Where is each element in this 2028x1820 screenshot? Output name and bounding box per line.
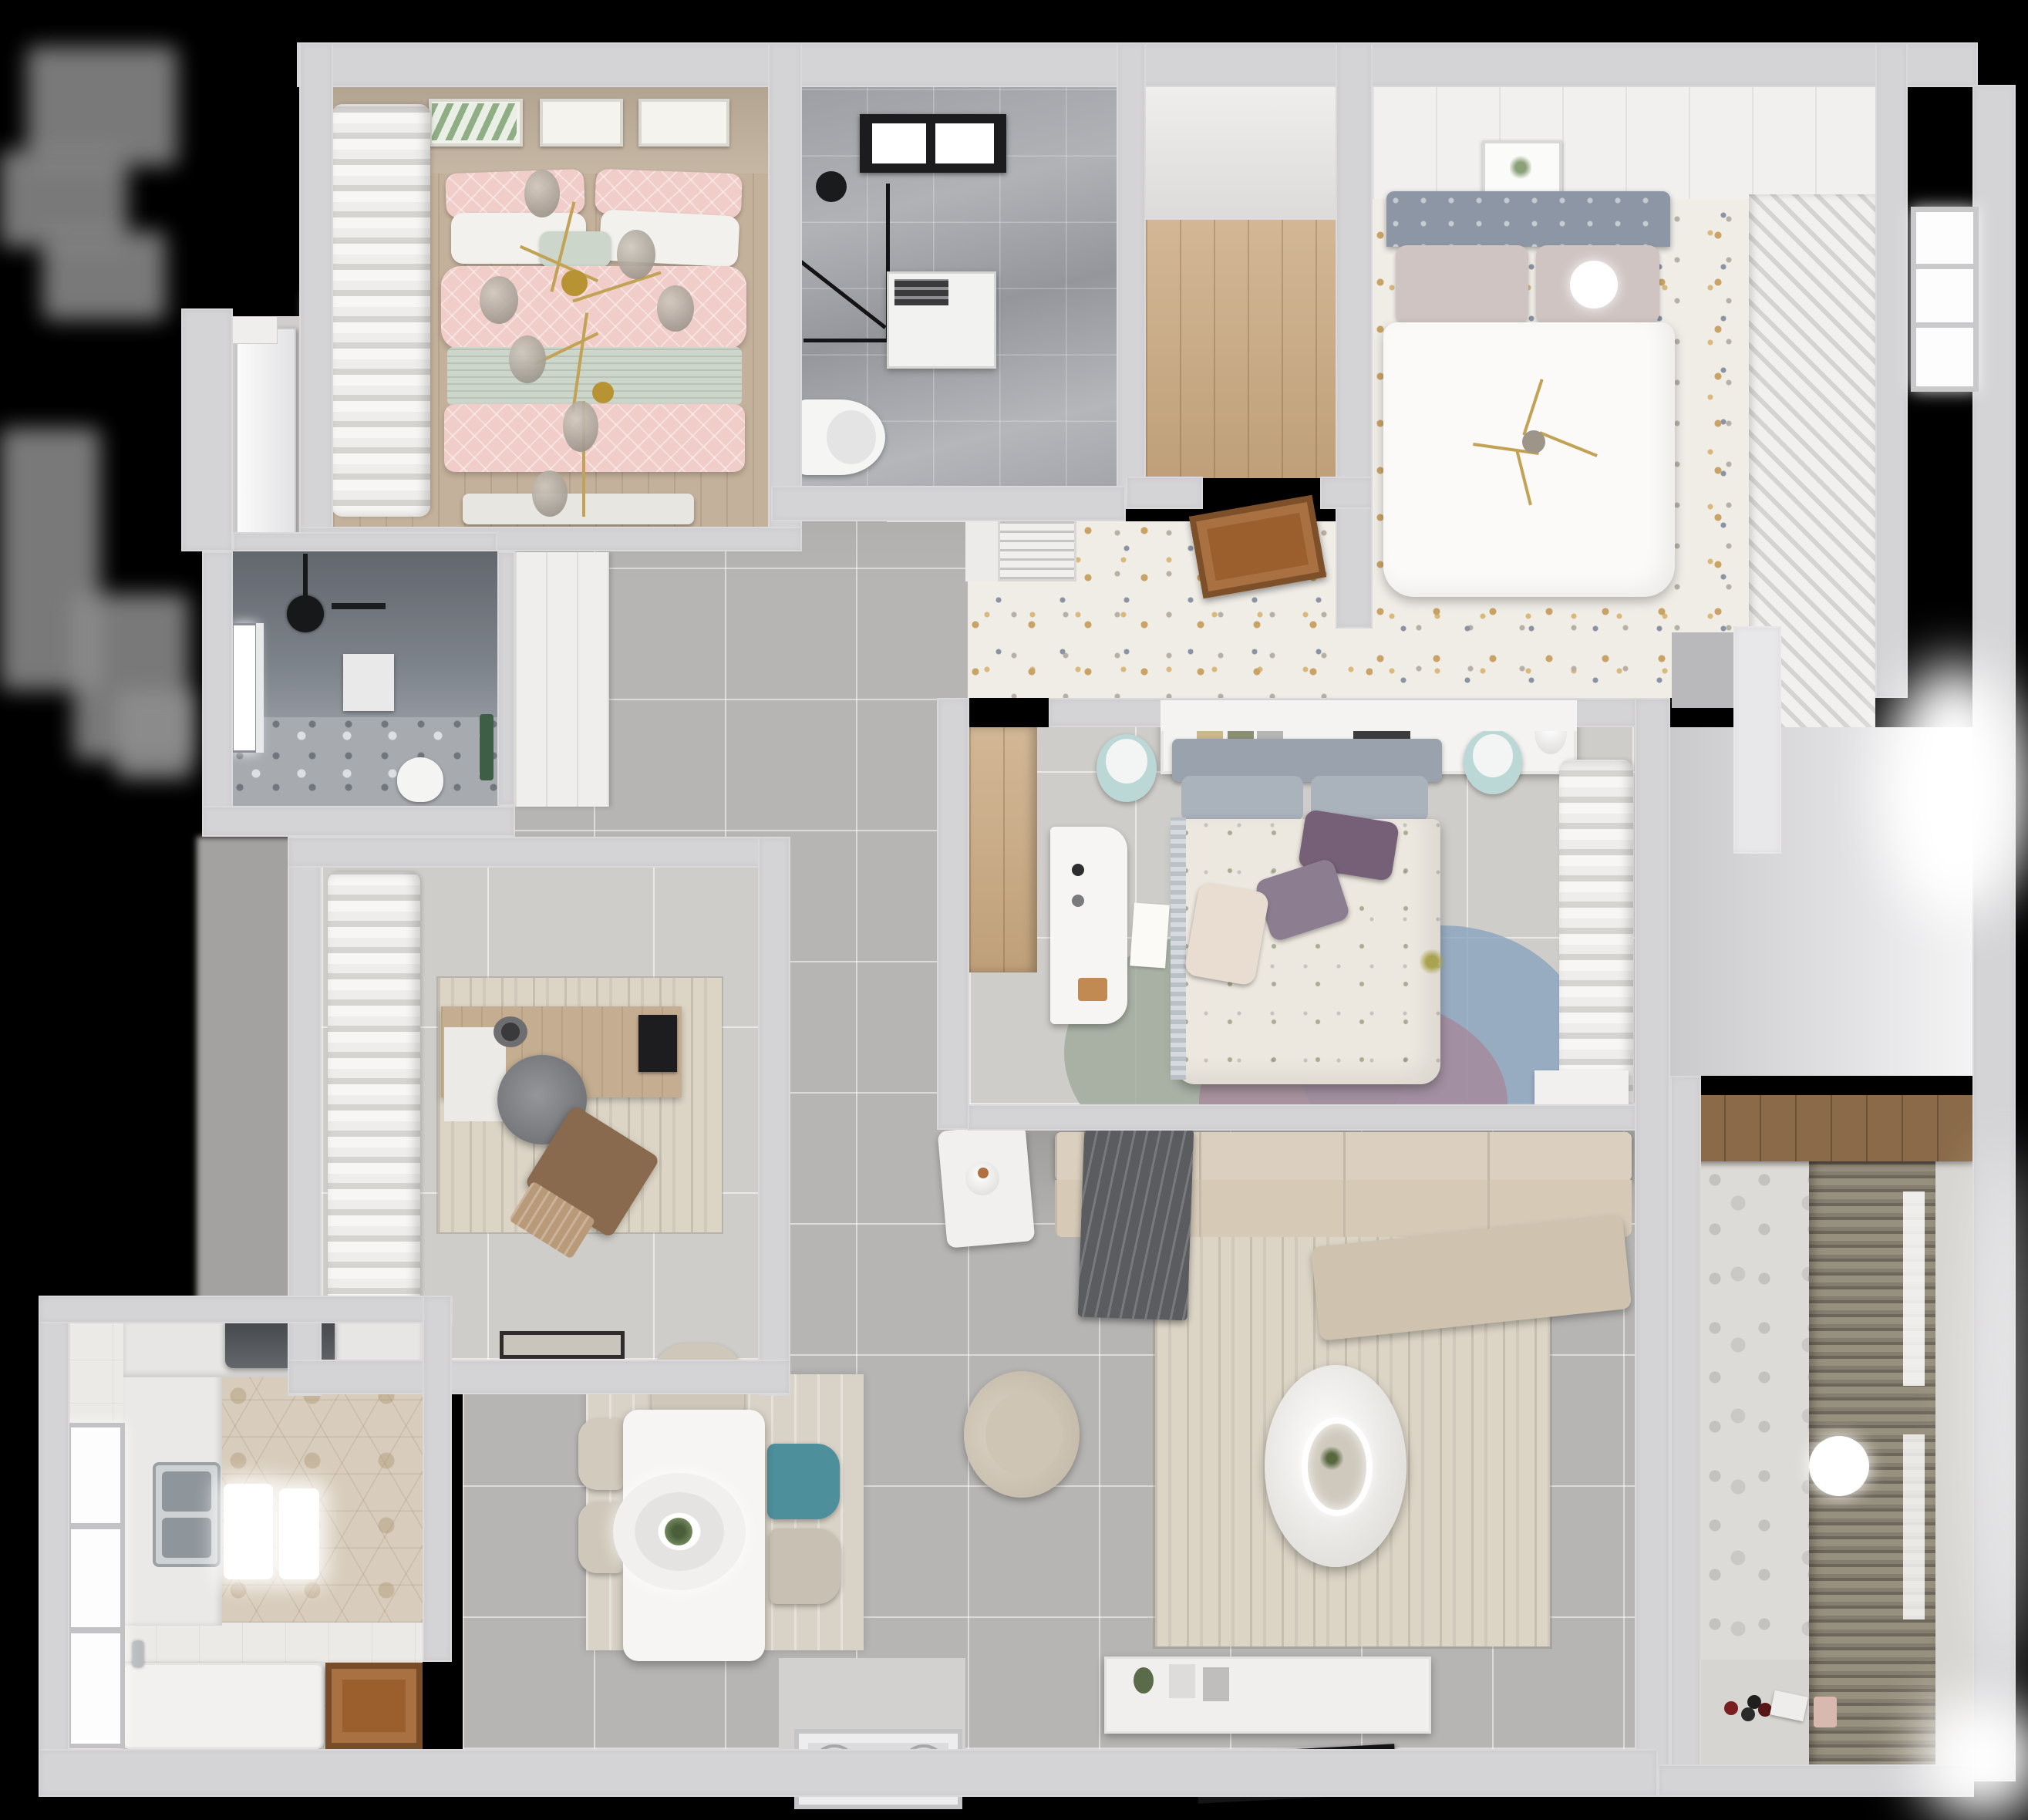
balcony-window-sliver: [1903, 1191, 1925, 1386]
shower-floor-speckle: [233, 717, 497, 806]
dining-chair: [770, 1528, 841, 1604]
master-desk-items: [1072, 864, 1084, 876]
master-duvet-sprig: [1419, 949, 1445, 975]
balcony-window-sliver: [1903, 1434, 1925, 1619]
wall-balcony-left: [1670, 1076, 1701, 1781]
living-armchair-seat: [985, 1393, 1063, 1476]
master-headboard-shelf-overlay: [1161, 700, 1577, 731]
balcony-toys: [1724, 1701, 1738, 1715]
master-paper-sheet: [1130, 902, 1170, 968]
kitchen-window-mullion: [71, 1627, 120, 1633]
picture-frame-botanical: [432, 103, 517, 140]
study-desk-items: [494, 1016, 527, 1047]
wall-bedroom1-bathroom: [768, 42, 802, 536]
washing-machine-controls: [894, 279, 948, 305]
wall-shower-top: [233, 532, 497, 551]
closet-floor: [1146, 220, 1336, 478]
master-stool-top: [1106, 739, 1147, 784]
vestibule-door: [236, 328, 296, 534]
study-monitor-icon: [638, 1015, 677, 1072]
bedroom2-frame-plant: [1510, 154, 1531, 180]
kitchen-sink-basin: [162, 1471, 211, 1512]
wall-closet-bottom-b: [1320, 477, 1373, 509]
wall-bathroom-bottom: [771, 486, 1126, 521]
master-stool-top: [1473, 734, 1513, 777]
shower-niche: [343, 654, 394, 711]
master-low-cabinet: [1534, 1070, 1629, 1104]
wall-shower-right: [497, 551, 515, 806]
kitchen-window-mullion: [71, 1523, 120, 1529]
wall-closet-bottom-a: [1126, 477, 1203, 509]
skylight-pane: [872, 123, 926, 163]
master-desk-tray: [1078, 978, 1107, 1001]
master-wood-niche: [969, 727, 1037, 972]
study-doormat: [500, 1331, 625, 1359]
master-pillow: [1181, 776, 1303, 822]
picture-frame-icon: [540, 99, 623, 147]
wall-master-left: [937, 698, 969, 1130]
wall-bedroom1-left: [299, 42, 333, 551]
kitchen-faucet-icon: [133, 1641, 143, 1667]
master-bed-fringe: [1171, 817, 1186, 1080]
ac-vent-icon: [998, 512, 1076, 581]
alcove-niche: [1672, 632, 1737, 708]
front-door-overlay: [794, 1729, 962, 1797]
wall-master-bottom: [968, 1104, 1636, 1131]
shadow-blob: [42, 231, 166, 320]
wall-shower-left: [202, 551, 233, 837]
wall-study-top: [288, 837, 790, 868]
skylight-pane: [935, 123, 994, 163]
wall-study-right: [758, 837, 790, 1396]
console-frames: [1169, 1664, 1195, 1698]
kitchen-sink-basin: [162, 1518, 211, 1558]
bedroom1-curtain: [332, 104, 430, 517]
shower-controls: [332, 603, 386, 609]
dining-pendant-plant: [665, 1518, 692, 1545]
tv-console: [1104, 1657, 1431, 1734]
kitchen-pendant-glow: [224, 1484, 273, 1579]
picture-frame-icon: [638, 99, 729, 147]
dining-chair-teal: [767, 1444, 840, 1519]
shower-window: [231, 623, 258, 753]
wall-bedroom2-left: [1336, 42, 1373, 629]
shower-toilet: [397, 757, 443, 802]
daylight-glow-entry: [1881, 663, 2028, 918]
wall-kitchen-left: [39, 1296, 69, 1797]
side-table-vase: [965, 1161, 999, 1195]
daylight-glow-corner: [1920, 1697, 2028, 1820]
wall-kitchen-top: [39, 1296, 453, 1323]
closet-ceiling: [1146, 87, 1336, 220]
kitchen-open-door: [325, 1663, 423, 1749]
shadow-blob: [27, 46, 177, 166]
wall-bedroom2-right: [1875, 42, 1908, 698]
bedroom2-chandelier: [1457, 362, 1612, 517]
shower-head-icon: [287, 595, 324, 632]
kitchen-pendant-glow: [279, 1488, 319, 1579]
window-top-right-mullion: [1916, 264, 1973, 269]
kitchen-island: [122, 1663, 324, 1749]
bedroom2-ball-lamp: [1570, 261, 1618, 308]
console-bottle: [1134, 1667, 1154, 1694]
wall-shower-bottom: [202, 806, 515, 837]
bedroom2-pillow: [1396, 245, 1528, 324]
alcove-pillar: [1733, 626, 1781, 854]
shower-head-arm: [303, 554, 308, 600]
shower-window-frame: [256, 623, 264, 753]
kitchen-window: [66, 1423, 125, 1748]
bedroom2-ceiling: [1373, 85, 1875, 199]
wall-living-right: [1635, 698, 1670, 1781]
dining-chair: [578, 1419, 623, 1490]
bedroom1-chandelier: [463, 170, 709, 524]
shower-plant: [480, 714, 494, 780]
hall-closet: [515, 552, 609, 807]
wall-vestibule-left: [181, 308, 233, 551]
side-table-flower: [978, 1168, 989, 1178]
window-top-right: [1911, 207, 1979, 392]
bathroom1-toilet-seat: [827, 410, 876, 464]
sofa-throw-grey: [1078, 1126, 1194, 1321]
coffee-table-plant: [1320, 1447, 1343, 1470]
balcony-watering-can: [1814, 1697, 1837, 1727]
shadow-blob: [116, 690, 193, 779]
bathroom1-shower-head-icon: [816, 171, 847, 202]
floor-plan-render: [0, 0, 2028, 1820]
balcony-pattern-wall: [1701, 1166, 1809, 1660]
bedroom2-headboard: [1386, 191, 1670, 247]
wall-bathroom-closet: [1117, 42, 1146, 509]
study-curtain: [328, 871, 420, 1357]
balcony-lamp-icon: [1809, 1436, 1869, 1496]
wall-kitchen-right: [423, 1296, 452, 1662]
wall-study-bottom: [288, 1360, 790, 1394]
balcony-wood-shelf: [1689, 1095, 1974, 1161]
daylight-glow-balcony: [1974, 1141, 2028, 1681]
